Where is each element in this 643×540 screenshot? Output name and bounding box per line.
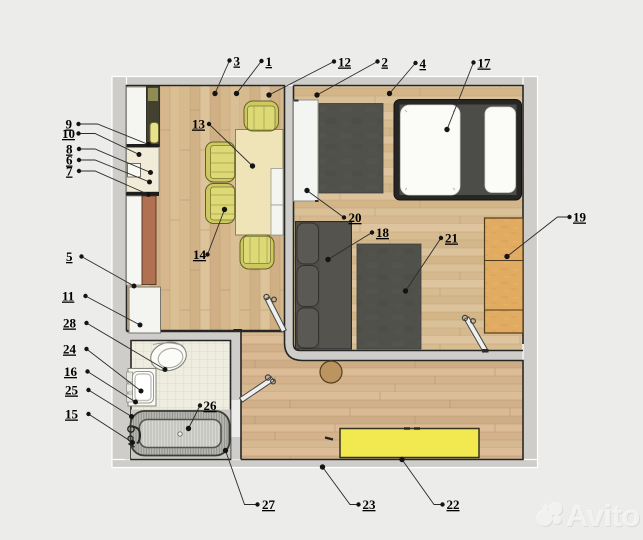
- svg-text:10: 10: [62, 126, 75, 141]
- svg-text:14: 14: [193, 247, 207, 262]
- svg-text:11: 11: [62, 289, 74, 304]
- svg-text:5: 5: [66, 249, 73, 264]
- svg-text:3: 3: [234, 54, 241, 69]
- svg-text:12: 12: [338, 55, 351, 70]
- svg-text:24: 24: [63, 342, 77, 357]
- svg-text:Avito: Avito: [566, 498, 640, 533]
- svg-text:7: 7: [66, 164, 73, 179]
- svg-text:20: 20: [349, 210, 362, 225]
- svg-text:13: 13: [192, 117, 206, 132]
- svg-text:2: 2: [382, 55, 389, 70]
- svg-text:21: 21: [445, 231, 458, 246]
- svg-text:27: 27: [262, 497, 276, 512]
- svg-text:28: 28: [63, 316, 77, 331]
- svg-text:25: 25: [65, 383, 79, 398]
- svg-text:18: 18: [376, 225, 390, 240]
- svg-text:19: 19: [573, 210, 587, 225]
- svg-text:1: 1: [266, 54, 273, 69]
- svg-text:23: 23: [363, 497, 377, 512]
- svg-text:17: 17: [478, 56, 492, 71]
- svg-text:22: 22: [447, 497, 460, 512]
- svg-text:16: 16: [64, 364, 78, 379]
- svg-text:4: 4: [420, 56, 427, 71]
- svg-text:15: 15: [65, 407, 79, 422]
- svg-text:26: 26: [204, 398, 218, 413]
